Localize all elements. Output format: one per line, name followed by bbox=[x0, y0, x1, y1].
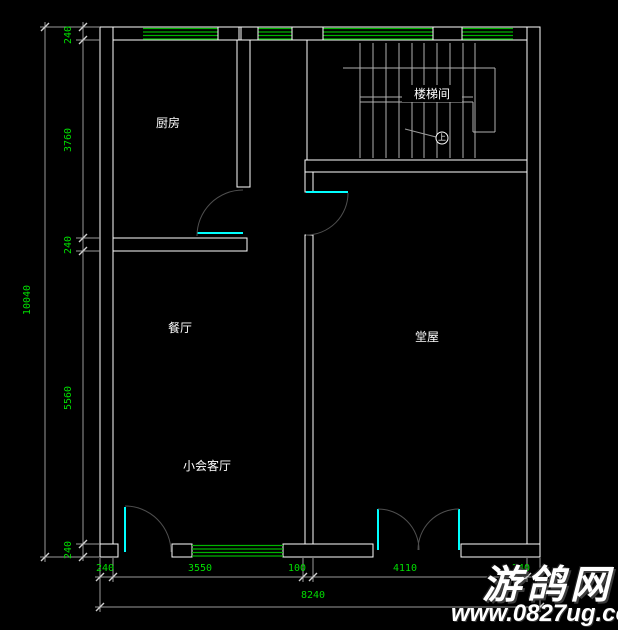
dim-bottom-3: 4110 bbox=[383, 563, 427, 575]
room-label-parlor: 小会客厅 bbox=[172, 457, 242, 474]
parlor-door-swing-arc bbox=[125, 506, 171, 552]
kitchen-door-swing-arc bbox=[197, 190, 243, 236]
room-label-hall: 堂屋 bbox=[399, 328, 455, 345]
parlor-entry-door bbox=[125, 506, 171, 552]
cad-floorplan-canvas: 厨房 楼梯间 餐厅 堂屋 小会客厅 上 240 3760 240 5560 24… bbox=[0, 0, 618, 630]
double-door-right-arc bbox=[418, 509, 459, 550]
kitchen-door bbox=[197, 190, 243, 236]
dim-left-1: 3760 bbox=[63, 118, 75, 162]
dim-bottom-total: 8240 bbox=[291, 590, 335, 602]
walls bbox=[100, 27, 540, 557]
dim-bottom-1: 3550 bbox=[178, 563, 222, 575]
hall-door-swing-arc bbox=[306, 193, 348, 235]
dim-left-0: 240 bbox=[63, 13, 75, 57]
hall-door bbox=[306, 192, 348, 235]
dim-bottom-2: 100 bbox=[275, 563, 319, 575]
stair-leader-line bbox=[405, 129, 436, 137]
dim-left-3: 5560 bbox=[63, 376, 75, 420]
room-label-kitchen: 厨房 bbox=[140, 114, 196, 131]
dim-left-2: 240 bbox=[63, 223, 75, 267]
watermark-site-url: www.0827ug.com bbox=[451, 601, 618, 627]
dim-left-total: 10040 bbox=[22, 272, 34, 328]
room-label-stairwell: 楼梯间 bbox=[402, 85, 462, 102]
dim-left-4: 240 bbox=[63, 528, 75, 572]
room-label-dining: 餐厅 bbox=[152, 319, 208, 336]
stair-up-symbol: 上 bbox=[438, 133, 446, 143]
main-double-door bbox=[378, 509, 459, 550]
floorplan-drawing bbox=[0, 0, 618, 630]
bottom-window bbox=[192, 546, 283, 557]
dim-bottom-0: 240 bbox=[83, 563, 127, 575]
double-door-left-arc bbox=[378, 509, 419, 550]
dimension-lines bbox=[40, 22, 545, 612]
